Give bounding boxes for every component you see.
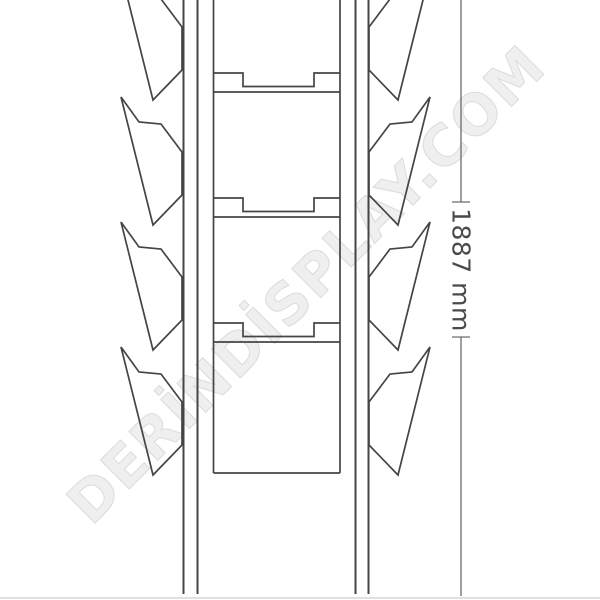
right-rail [356,0,369,594]
pockets-right [369,0,430,475]
pocket-left-2 [121,97,182,225]
shelf-divider-2 [214,198,341,217]
pocket-left-1 [121,0,182,100]
shelf-divider-3 [214,323,341,342]
dimension-label: 1887 mm [447,204,476,336]
shelf-divider-1 [214,73,341,92]
center-panel-column [214,0,341,473]
left-rail [184,0,198,594]
display-stand-drawing [0,0,600,600]
technical-drawing-canvas: DERİNDİSPLAY.COM [0,0,600,600]
pocket-right-2 [369,97,430,225]
pocket-right-1 [369,0,430,100]
pocket-left-4 [121,347,182,475]
pocket-right-4 [369,347,430,475]
pockets-left [121,0,182,475]
pocket-left-3 [121,222,182,350]
pocket-right-3 [369,222,430,350]
